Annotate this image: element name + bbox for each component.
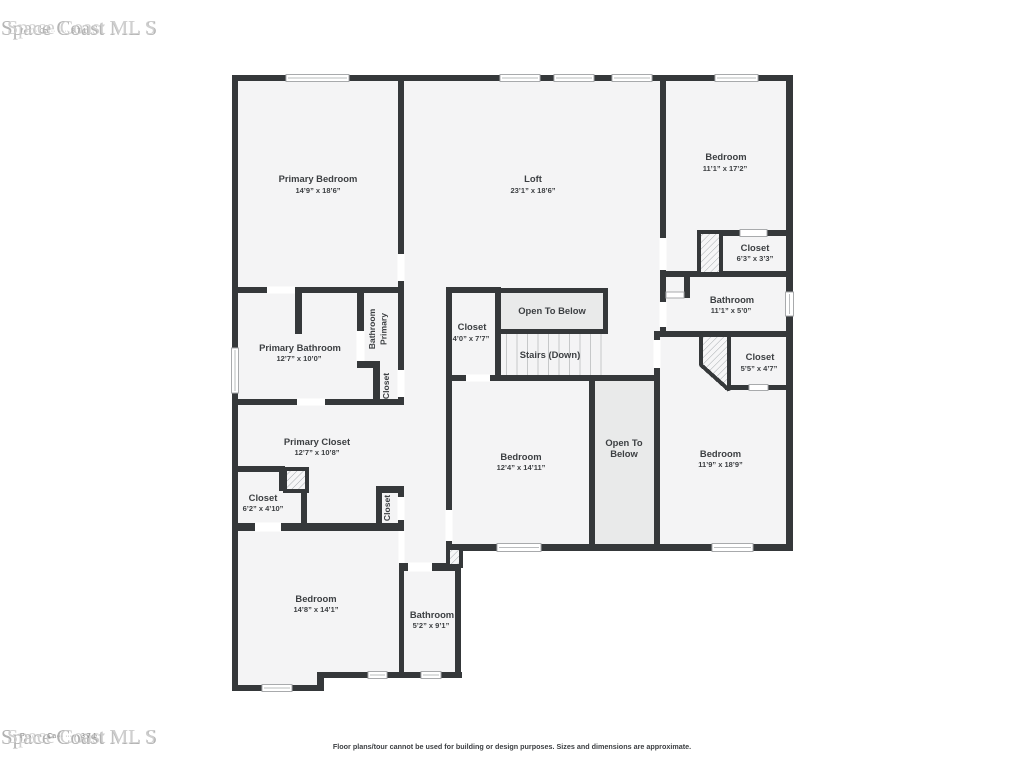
svg-text:6’3” x 3’3”: 6’3” x 3’3” <box>737 254 774 263</box>
svg-text:Bathroom: Bathroom <box>367 308 377 349</box>
svg-text:5’2” x 9’1”: 5’2” x 9’1” <box>413 621 450 630</box>
svg-text:5’5” x 4’7”: 5’5” x 4’7” <box>741 364 778 373</box>
svg-text:12’4” x 14’11”: 12’4” x 14’11” <box>497 463 546 472</box>
svg-text:14’9” x 18’6”: 14’9” x 18’6” <box>295 186 340 195</box>
svg-text:Bathroom: Bathroom <box>710 294 754 305</box>
svg-text:Closet: Closet <box>458 321 487 332</box>
svg-text:Below: Below <box>610 448 638 459</box>
svg-text:Loft: Loft <box>524 173 542 184</box>
svg-text:Bedroom: Bedroom <box>295 593 336 604</box>
svg-text:Closet: Closet <box>746 351 775 362</box>
svg-text:P······ ·· Ca··· ······ 3 7 1: P······ ·· Ca··· ······ 3 7 1 <box>20 733 97 740</box>
svg-text:6’2” x 4’10”: 6’2” x 4’10” <box>243 504 284 513</box>
svg-text:Primary Bathroom: Primary Bathroom <box>259 342 341 353</box>
svg-text:Bedroom: Bedroom <box>700 448 741 459</box>
svg-text:14’8” x 14’1”: 14’8” x 14’1” <box>293 605 338 614</box>
svg-text:Stairs (Down): Stairs (Down) <box>520 349 580 360</box>
svg-text:11’9” x 18’9”: 11’9” x 18’9” <box>698 460 743 469</box>
svg-text:12’7” x 10’8”: 12’7” x 10’8” <box>294 448 339 457</box>
svg-text:4’0” x 7’7”: 4’0” x 7’7” <box>453 334 490 343</box>
svg-text:Floor plans/tour cannot be use: Floor plans/tour cannot be used for buil… <box>333 742 691 751</box>
svg-text:23’1” x 18’6”: 23’1” x 18’6” <box>510 186 555 195</box>
svg-text:Primary: Primary <box>379 313 389 345</box>
svg-text:Primary Closet: Primary Closet <box>284 436 350 447</box>
svg-text:Open To Below: Open To Below <box>518 305 586 316</box>
svg-text:Open To: Open To <box>605 437 643 448</box>
svg-text:Bathroom: Bathroom <box>410 609 454 620</box>
svg-text:Bedroom: Bedroom <box>500 451 541 462</box>
svg-text:ƒ··· ·· Ca··· ····· 3 7 1: ƒ··· ·· Ca··· ····· 3 7 1 <box>20 28 87 35</box>
svg-text:Bedroom: Bedroom <box>705 151 746 162</box>
svg-text:12’7” x 10’0”: 12’7” x 10’0” <box>276 354 321 363</box>
svg-text:Primary Bedroom: Primary Bedroom <box>279 173 358 184</box>
svg-text:Closet: Closet <box>381 373 391 399</box>
svg-text:Closet: Closet <box>249 492 278 503</box>
svg-text:11’1” x 5’0”: 11’1” x 5’0” <box>711 306 752 315</box>
svg-text:Closet: Closet <box>741 242 770 253</box>
svg-text:Closet: Closet <box>382 495 392 521</box>
svg-text:11’1” x 17’2”: 11’1” x 17’2” <box>703 164 748 173</box>
